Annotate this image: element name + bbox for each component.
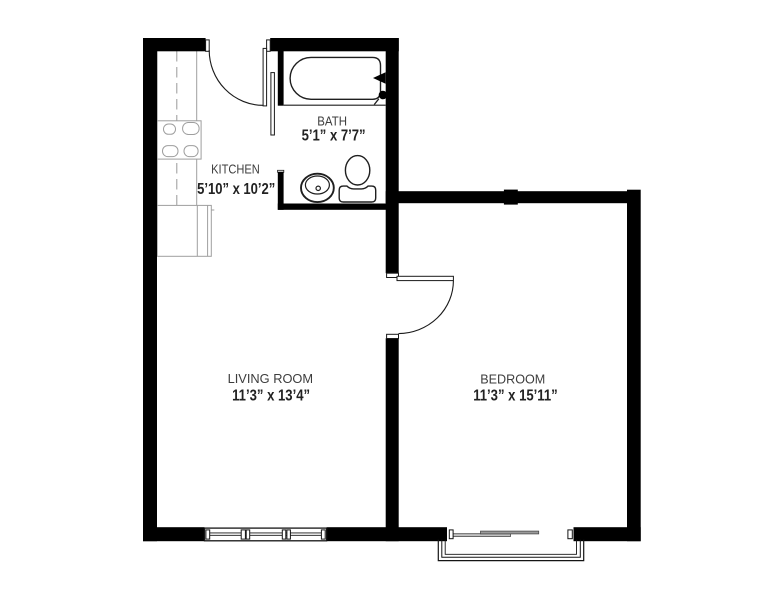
- svg-text:5’10” x 10’2”: 5’10” x 10’2”: [197, 181, 275, 198]
- svg-text:5’1” x 7’7”: 5’1” x 7’7”: [302, 128, 366, 145]
- svg-text:BEDROOM: BEDROOM: [480, 372, 545, 387]
- svg-text:KITCHEN: KITCHEN: [211, 162, 260, 177]
- svg-text:11’3” x 13’4”: 11’3” x 13’4”: [232, 388, 310, 405]
- svg-text:BATH: BATH: [317, 113, 347, 128]
- svg-text:LIVING ROOM: LIVING ROOM: [228, 371, 314, 386]
- svg-text:11’3” x 15’11”: 11’3” x 15’11”: [473, 388, 558, 405]
